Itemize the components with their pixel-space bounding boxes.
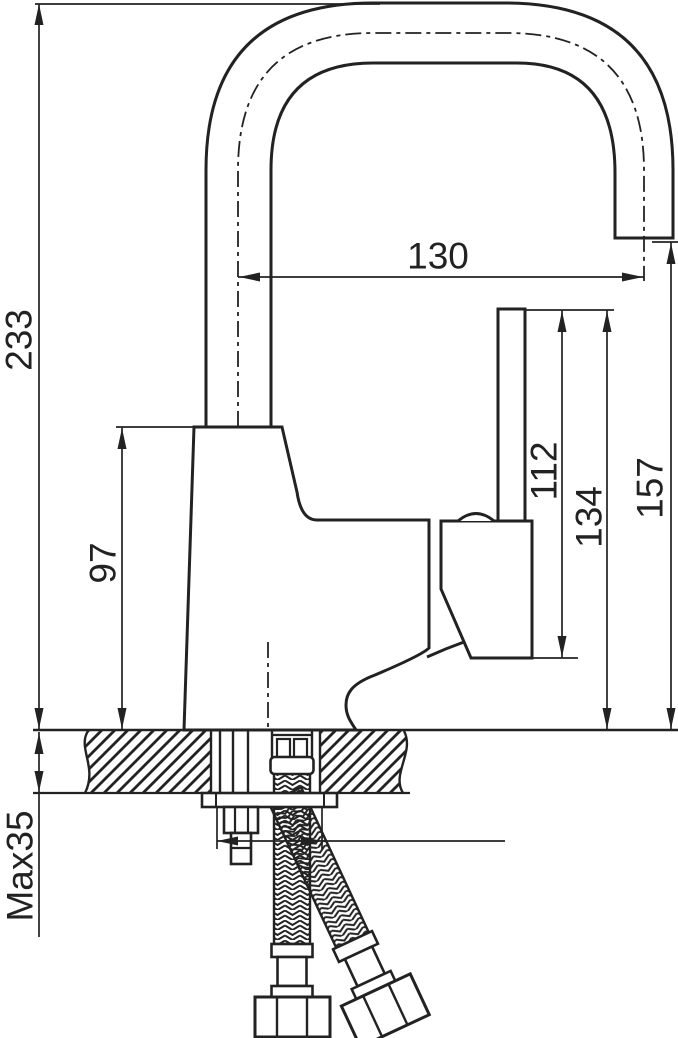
deck-hatch-right bbox=[320, 731, 407, 793]
hose-tube bbox=[278, 957, 307, 986]
arrowhead-down bbox=[35, 708, 44, 729]
arrowhead-up bbox=[35, 4, 44, 25]
hose-ring bbox=[272, 986, 313, 997]
mounting-flange bbox=[202, 793, 337, 807]
arrowhead-down bbox=[35, 771, 44, 792]
arrowhead-up bbox=[558, 311, 567, 332]
body-foot-curve bbox=[427, 642, 464, 657]
dim-label-max-deck-thickness: Max35 bbox=[2, 810, 39, 921]
handle-pivot-dome bbox=[458, 514, 494, 522]
hose-connector-port bbox=[277, 739, 290, 757]
handle-base bbox=[441, 521, 532, 658]
dim-label-total-height: 233 bbox=[1, 309, 38, 371]
arrowhead-left bbox=[217, 837, 238, 846]
handle bbox=[441, 309, 532, 658]
arrowhead-down bbox=[667, 708, 676, 729]
hose-collar bbox=[272, 944, 313, 957]
dimension-flange-width-untexted bbox=[217, 837, 505, 846]
arrowhead-down bbox=[603, 708, 612, 729]
hose-connector-port bbox=[294, 739, 307, 757]
arrowhead-up bbox=[118, 428, 127, 449]
countertop-section bbox=[33, 730, 678, 793]
lever-handle bbox=[498, 309, 525, 521]
hose-connector-collar bbox=[271, 757, 314, 774]
deck-hatch-left bbox=[85, 731, 211, 793]
dim-label-lever-to-deck: 134 bbox=[571, 486, 608, 548]
arrowhead-down bbox=[558, 636, 567, 657]
spout-outline bbox=[206, 3, 673, 427]
faucet-body bbox=[184, 427, 464, 730]
spout bbox=[206, 3, 673, 427]
arrowhead-down bbox=[118, 708, 127, 729]
arrowhead-up bbox=[35, 733, 44, 754]
dimensions bbox=[35, 4, 678, 937]
spout-centerline bbox=[238, 33, 644, 427]
mounting-nut bbox=[224, 807, 258, 833]
dim-label-handle-height: 112 bbox=[526, 442, 563, 501]
arrowhead-up bbox=[667, 243, 676, 264]
arrowhead-right bbox=[622, 273, 643, 282]
mounting-nut-and-stud bbox=[224, 807, 258, 864]
technical-drawing-canvas: 233 97 Max35 130 112 134 157 bbox=[0, 0, 678, 1038]
hose-hex-nut bbox=[255, 997, 330, 1037]
arrowhead-up bbox=[603, 311, 612, 332]
dim-label-outlet-height: 157 bbox=[632, 457, 669, 519]
body-outline bbox=[184, 427, 429, 730]
dim-label-spout-reach: 130 bbox=[407, 238, 469, 275]
dim-label-body-height: 97 bbox=[85, 542, 122, 583]
